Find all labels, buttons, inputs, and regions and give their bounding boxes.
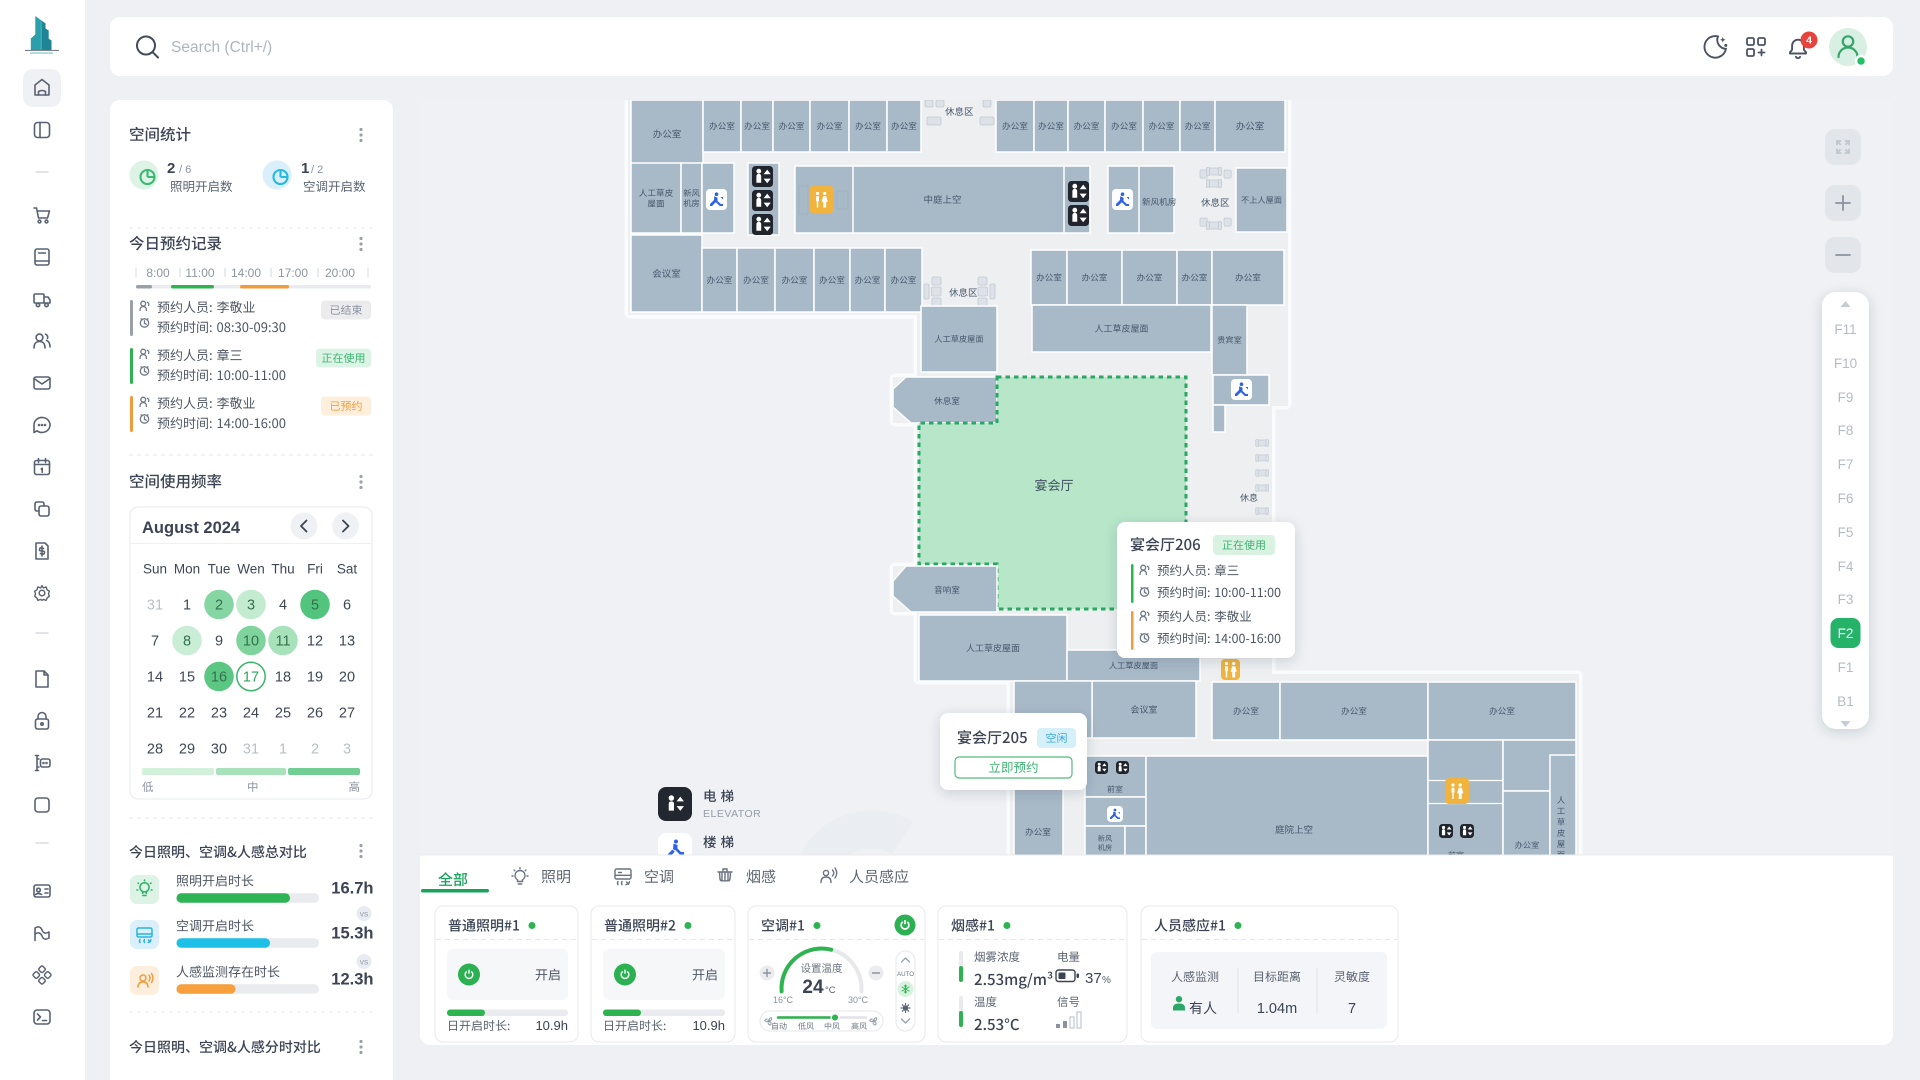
svg-text:4: 4 [279,598,287,614]
svg-text:19: 19 [307,670,323,686]
svg-text:12.3h: 12.3h [331,971,373,989]
svg-text:ELEVATOR: ELEVATOR [703,808,761,820]
svg-text:29: 29 [179,742,195,758]
svg-text:F5: F5 [1838,525,1854,540]
svg-text:/ 2: / 2 [311,164,323,176]
svg-text:2: 2 [311,742,319,758]
svg-text:24: 24 [802,977,824,998]
svg-text:1: 1 [301,160,309,177]
svg-text:37: 37 [1085,970,1102,987]
svg-text:6: 6 [343,598,351,614]
svg-text:8: 8 [183,634,191,650]
svg-text:Thu: Thu [271,562,294,577]
svg-text:10.9h: 10.9h [535,1018,568,1033]
svg-text:Sun: Sun [143,562,167,577]
svg-text:9: 9 [215,634,223,650]
svg-text:31: 31 [243,742,259,758]
svg-text:F1: F1 [1838,660,1854,675]
svg-text:8:00: 8:00 [146,266,170,280]
svg-text:14:00: 14:00 [231,266,261,280]
svg-text:F7: F7 [1838,457,1854,472]
svg-text:F4: F4 [1838,559,1854,574]
svg-text:14: 14 [147,670,163,686]
svg-text:20: 20 [339,670,355,686]
svg-text:Sat: Sat [337,562,358,577]
svg-text:16°C: 16°C [773,995,794,1005]
svg-text:17: 17 [243,670,259,686]
svg-text:21: 21 [147,706,163,722]
svg-text:30°C: 30°C [848,995,869,1005]
svg-text:Mon: Mon [174,562,200,577]
svg-text:F6: F6 [1838,491,1854,506]
svg-text:F9: F9 [1838,390,1854,405]
svg-text:12: 12 [307,634,323,650]
svg-text:Wen: Wen [237,562,265,577]
svg-text:17:00: 17:00 [278,266,308,280]
svg-text:10: 10 [243,634,259,650]
svg-text:B1: B1 [1837,694,1854,709]
svg-text:25: 25 [275,706,291,722]
svg-text:11: 11 [275,634,290,650]
svg-text:30: 30 [211,742,227,758]
svg-text:August 2024: August 2024 [142,519,241,537]
svg-text:2: 2 [215,598,223,614]
svg-text:vs: vs [360,909,369,919]
svg-text:24: 24 [243,706,259,722]
svg-text:%: % [1102,975,1111,986]
svg-text:26: 26 [307,706,323,722]
svg-text:16: 16 [211,670,227,686]
svg-text:27: 27 [339,706,355,722]
svg-text:5: 5 [311,598,319,614]
svg-text:F11: F11 [1834,322,1856,337]
svg-text:15: 15 [179,670,195,686]
svg-text:AUTO: AUTO [897,971,914,978]
svg-text:18: 18 [275,670,291,686]
svg-text:31: 31 [147,598,163,614]
svg-text:Tue: Tue [208,562,231,577]
svg-text:/ 6: / 6 [179,164,191,176]
svg-text:23: 23 [211,706,227,722]
svg-text:16.7h: 16.7h [331,880,373,898]
svg-text:1: 1 [183,598,191,614]
svg-text:F3: F3 [1838,592,1854,607]
svg-text:15.3h: 15.3h [331,925,373,943]
svg-text:11:00: 11:00 [185,266,214,280]
svg-text:F10: F10 [1834,356,1857,371]
svg-text:3: 3 [247,598,255,614]
svg-text:13: 13 [339,634,355,650]
svg-text:20:00: 20:00 [325,266,355,280]
svg-text:7: 7 [151,634,159,650]
svg-text:1: 1 [279,742,287,758]
svg-text:vs: vs [360,957,369,967]
svg-text:1.04m: 1.04m [1257,1001,1297,1017]
svg-text:28: 28 [147,742,163,758]
svg-text:F2: F2 [1838,626,1854,641]
svg-text:7: 7 [1348,1001,1356,1017]
svg-text:22: 22 [179,706,195,722]
svg-text:°C: °C [825,985,836,996]
svg-text:10.9h: 10.9h [692,1018,725,1033]
svg-text:Fri: Fri [307,562,323,577]
svg-text:F8: F8 [1838,423,1854,438]
svg-text:2: 2 [167,160,175,177]
svg-text:Search (Ctrl+/): Search (Ctrl+/) [171,39,272,56]
svg-text:4: 4 [1806,35,1812,47]
svg-text:3: 3 [343,742,351,758]
